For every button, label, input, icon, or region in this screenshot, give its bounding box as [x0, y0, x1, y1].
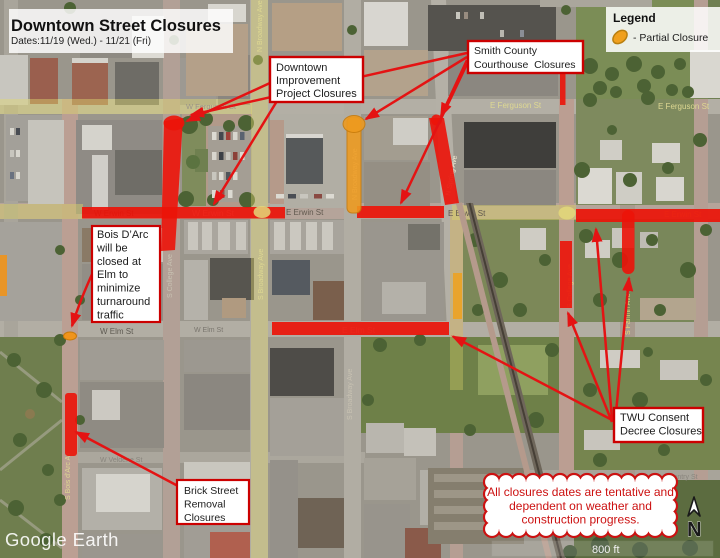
- svg-text:Smith County: Smith County: [474, 45, 538, 57]
- svg-text:E Erwin St: E Erwin St: [448, 209, 486, 218]
- svg-text:S Broadway Ave: S Broadway Ave: [258, 249, 265, 300]
- svg-text:E Ferguson St: E Ferguson St: [658, 102, 710, 111]
- svg-text:- Partial Closure: - Partial Closure: [633, 32, 708, 44]
- svg-text:Improvement: Improvement: [276, 75, 340, 87]
- svg-text:Removal: Removal: [184, 499, 225, 511]
- svg-text:turnaround: turnaround: [97, 296, 150, 308]
- svg-text:Bois D’Arc: Bois D’Arc: [97, 229, 149, 241]
- svg-text:Elm to: Elm to: [97, 269, 128, 281]
- svg-text:All closures dates are tentati: All closures dates are tentative and: [487, 485, 674, 499]
- svg-text:S College Ave: S College Ave: [167, 254, 174, 298]
- svg-text:E Ferguson St: E Ferguson St: [490, 101, 542, 110]
- svg-text:dependent on weather and: dependent on weather and: [509, 499, 652, 513]
- svg-text:Legend: Legend: [613, 11, 656, 25]
- svg-text:minimize: minimize: [97, 283, 140, 295]
- svg-text:800 ft: 800 ft: [592, 544, 620, 556]
- svg-text:Downtown: Downtown: [276, 62, 327, 74]
- svg-text:Google Earth: Google Earth: [5, 529, 119, 550]
- svg-text:N: N: [687, 519, 701, 541]
- svg-text:Project Closures: Project Closures: [276, 88, 357, 100]
- svg-text:Brick Street: Brick Street: [184, 485, 238, 497]
- svg-text:Dates:11/19 (Wed.) - 11/21 (Fr: Dates:11/19 (Wed.) - 11/21 (Fri): [11, 36, 151, 47]
- svg-text:E Erwin St: E Erwin St: [286, 208, 324, 217]
- svg-text:Courthouse Closures: Courthouse Closures: [474, 59, 576, 71]
- svg-text:TWU Consent: TWU Consent: [620, 412, 689, 424]
- svg-text:traffic: traffic: [97, 309, 124, 321]
- svg-text:W Elm St: W Elm St: [100, 327, 134, 336]
- svg-text:Closures: Closures: [184, 512, 225, 524]
- svg-text:construction progress.: construction progress.: [521, 513, 639, 527]
- svg-text:Decree Closures: Decree Closures: [620, 426, 702, 438]
- svg-text:will be: will be: [96, 242, 128, 254]
- svg-text:N Broadway Ave: N Broadway Ave: [257, 0, 264, 52]
- svg-text:Downtown Street Closures: Downtown Street Closures: [11, 17, 221, 35]
- svg-text:S Broadway Ave: S Broadway Ave: [347, 369, 354, 420]
- svg-text:closed at: closed at: [97, 256, 141, 268]
- svg-text:W Elm St: W Elm St: [194, 327, 223, 334]
- svg-text:S Bois d'Arc Av: S Bois d'Arc Av: [65, 452, 72, 500]
